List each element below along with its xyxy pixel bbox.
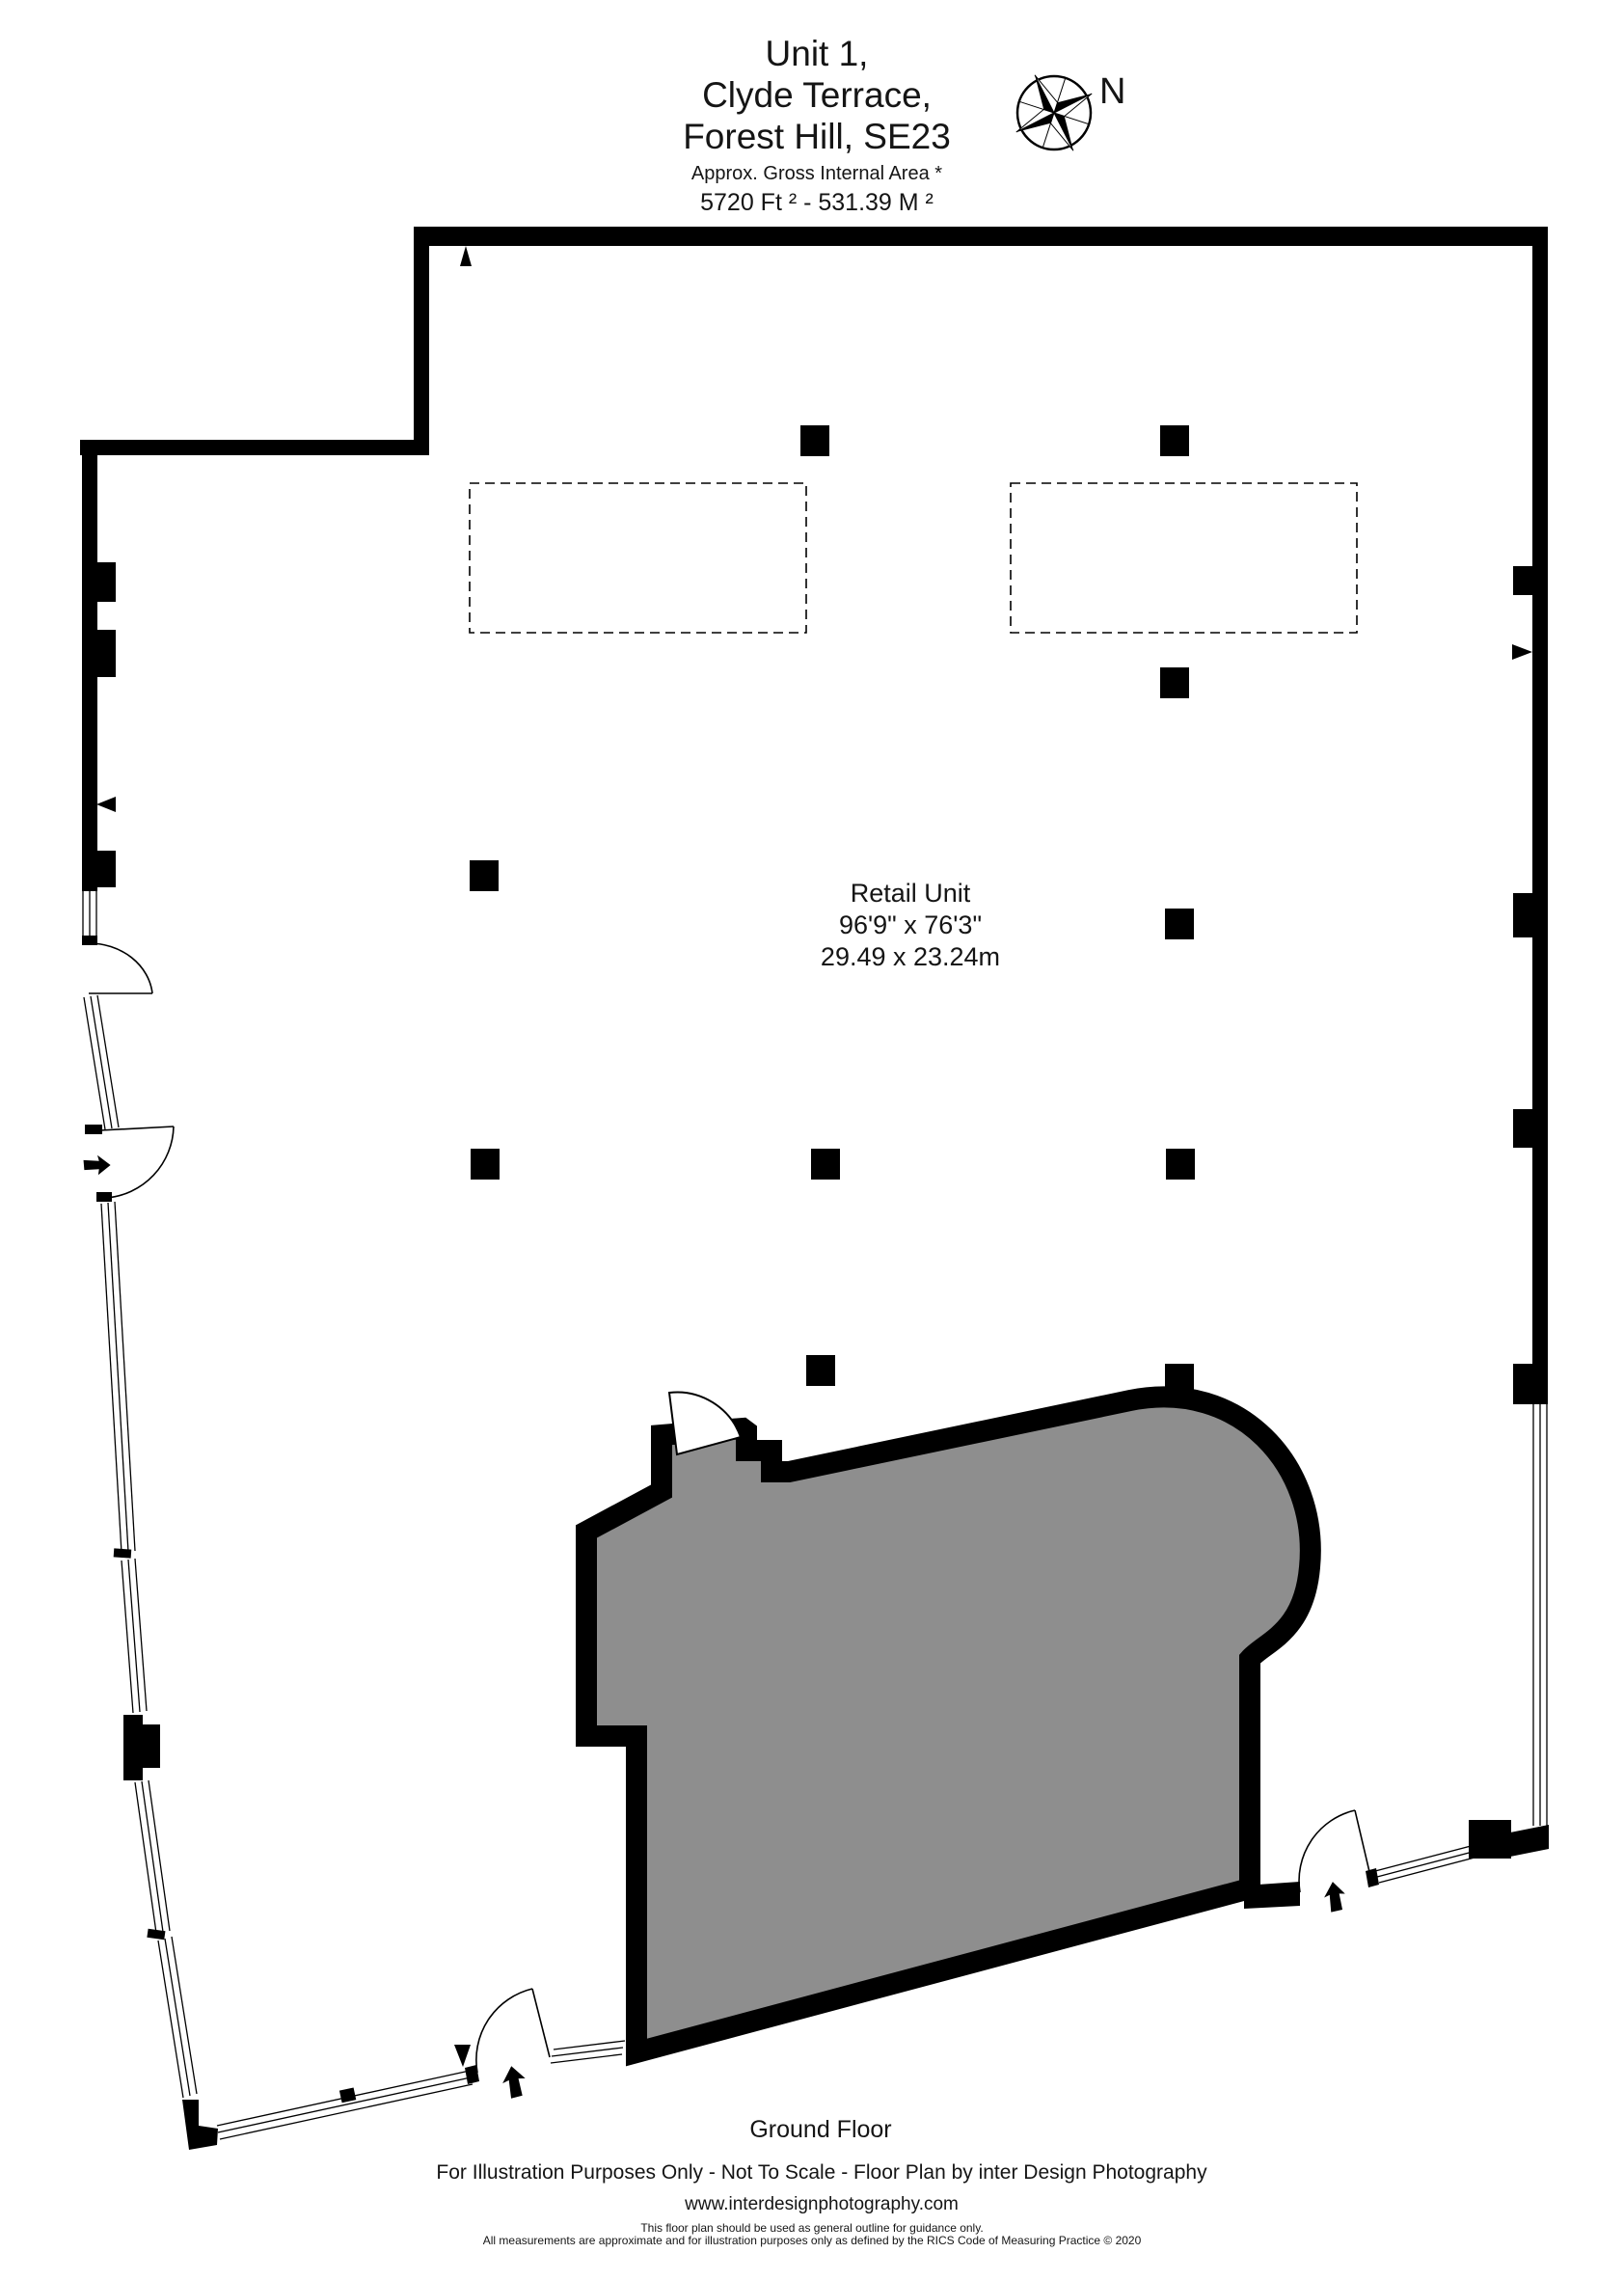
room-name: Retail Unit bbox=[717, 878, 1103, 909]
stair-block-left bbox=[123, 1715, 160, 1780]
door-left-lower bbox=[100, 1126, 174, 1198]
corner-block-bottom-right bbox=[1510, 1825, 1549, 1857]
footer-illustration-note: For Illustration Purposes Only - Not To … bbox=[243, 2161, 1400, 2185]
shaded-area-outline bbox=[586, 1397, 1311, 2052]
door-bottom-left bbox=[476, 1989, 550, 2073]
rooflight-dashed-outlines bbox=[470, 483, 1357, 633]
arrow-left-wall-icon bbox=[96, 797, 116, 812]
area-value: 5720 Ft ² - 531.39 M ² bbox=[431, 188, 1203, 217]
arrow-entry-bottom-right-icon bbox=[1322, 1881, 1347, 1914]
floor-label: Ground Floor bbox=[628, 2116, 1014, 2144]
room-dimensions-imperial: 96'9" x 76'3" bbox=[717, 909, 1103, 941]
footer-website: www.interdesignphotography.com bbox=[243, 2194, 1400, 2215]
floorplan-page: N Unit 1, Clyde Terrace, Forest Hill, SE… bbox=[0, 0, 1624, 2280]
footer-disclaimer-2: All measurements are approximate and for… bbox=[233, 2235, 1391, 2247]
arrow-right-wall-icon bbox=[1512, 644, 1532, 660]
arrow-door-left-icon bbox=[84, 1155, 111, 1175]
corner-block-bottom-left bbox=[182, 2100, 218, 2150]
wall-top bbox=[414, 227, 1548, 246]
title-line-3: Forest Hill, SE23 bbox=[431, 116, 1203, 157]
block-bottom-right bbox=[1469, 1820, 1511, 1859]
title-block: Unit 1, Clyde Terrace, Forest Hill, SE23… bbox=[431, 33, 1203, 217]
glazing-mullion-ticks bbox=[114, 1548, 357, 2103]
door-bottom-right bbox=[1299, 1810, 1370, 1892]
arrow-top-icon bbox=[460, 246, 472, 266]
wall-right bbox=[1532, 227, 1548, 1404]
floorplan-drawing: N bbox=[0, 0, 1624, 2280]
room-dimensions-metric: 29.49 x 23.24m bbox=[717, 941, 1103, 973]
rooflight-left bbox=[470, 483, 806, 633]
wall-left bbox=[82, 440, 97, 889]
door-left-upper bbox=[89, 943, 152, 993]
wall-top-jog-horizontal bbox=[80, 440, 429, 455]
rooflight-right bbox=[1011, 483, 1357, 633]
room-label-block: Retail Unit 96'9" x 76'3" 29.49 x 23.24m bbox=[717, 878, 1103, 973]
arrow-marker-bottom-icon bbox=[454, 2045, 471, 2067]
wall-top-jog-vertical bbox=[414, 227, 429, 455]
arrow-entry-bottom-left-icon bbox=[500, 2064, 528, 2100]
shaded-area bbox=[586, 1397, 1311, 2052]
area-label: Approx. Gross Internal Area * bbox=[431, 161, 1203, 186]
outer-walls bbox=[80, 227, 1548, 1404]
title-line-1: Unit 1, bbox=[431, 33, 1203, 74]
title-line-2: Clyde Terrace, bbox=[431, 74, 1203, 116]
